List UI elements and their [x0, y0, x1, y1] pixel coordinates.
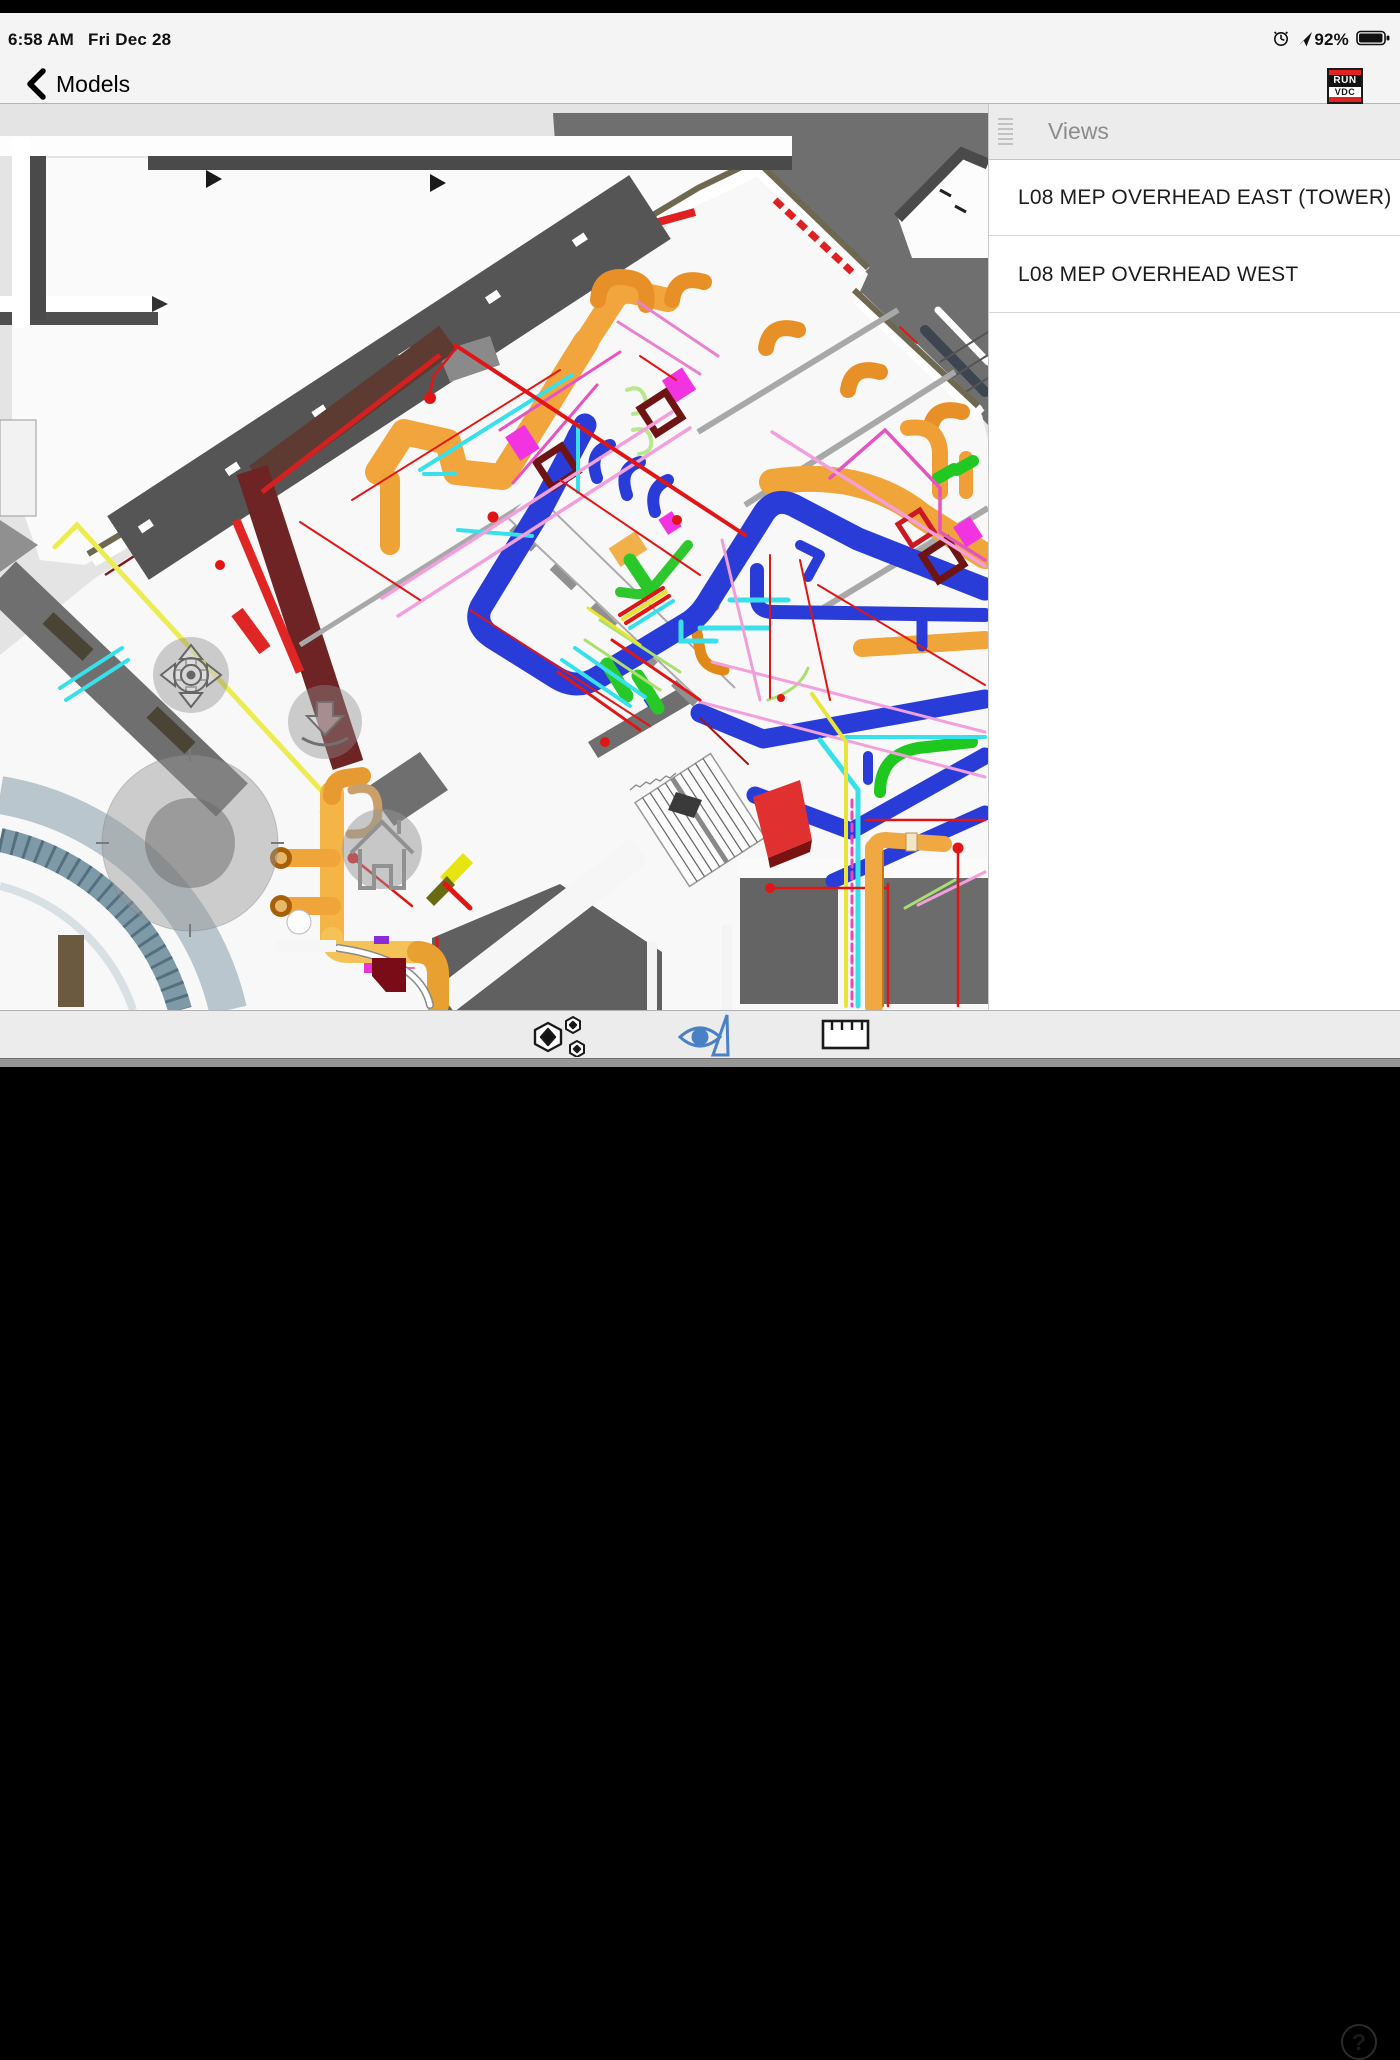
screen-top-bezel [0, 0, 1400, 13]
eye-view-icon [680, 1015, 728, 1055]
back-chevron-icon [26, 68, 46, 100]
view-item-label: L08 MEP OVERHEAD EAST (TOWER) [1018, 186, 1391, 210]
views-panel: Views L08 MEP OVERHEAD EAST (TOWER) L08 … [988, 104, 1400, 1010]
measure-tool-button[interactable] [820, 1018, 872, 1052]
models-tool-button[interactable] [528, 1015, 592, 1057]
view-item-l08-mep-overhead-east-tower[interactable]: L08 MEP OVERHEAD EAST (TOWER) [989, 160, 1400, 236]
top-chrome: 6:58 AM Fri Dec 28 92% Models RUN VDC [0, 13, 1400, 104]
drop-to-floor-control[interactable] [288, 685, 362, 759]
back-button[interactable]: Models [26, 62, 186, 106]
ruler-icon [823, 1021, 868, 1048]
alarm-clock-icon [1275, 32, 1288, 45]
dpad-control[interactable] [153, 637, 229, 713]
model-cluster-icon [535, 1017, 584, 1057]
help-button-label: ? [1352, 2029, 1366, 2055]
logo-text-top: RUN [1329, 75, 1361, 87]
view-item-label: L08 MEP OVERHEAD WEST [1018, 263, 1298, 287]
battery-percent: 92% [1314, 30, 1349, 50]
views-panel-header[interactable]: Views [989, 104, 1400, 160]
status-date: Fri Dec 28 [88, 30, 171, 50]
bim-model-canvas [0, 104, 988, 1010]
battery-icon [1356, 30, 1392, 48]
views-panel-title: Views [1048, 118, 1109, 145]
status-time: 6:58 AM [8, 30, 74, 50]
view-item-l08-mep-overhead-west[interactable]: L08 MEP OVERHEAD WEST [989, 237, 1400, 313]
model-viewport[interactable] [0, 104, 988, 1010]
bottom-toolbar: ? [0, 1010, 1400, 1058]
home-indicator-strip [0, 1058, 1400, 1067]
run-vdc-logo: RUN VDC [1327, 68, 1363, 104]
location-arrow-icon [1298, 32, 1312, 47]
back-button-label: Models [56, 71, 130, 98]
logo-text-bottom: VDC [1329, 87, 1361, 97]
grip-icon [998, 118, 1013, 146]
logo-stripe-bottom [1329, 97, 1361, 102]
views-tool-button[interactable] [672, 1012, 734, 1058]
help-button[interactable]: ? [1341, 2024, 1377, 2060]
home-view-control[interactable] [342, 809, 422, 889]
